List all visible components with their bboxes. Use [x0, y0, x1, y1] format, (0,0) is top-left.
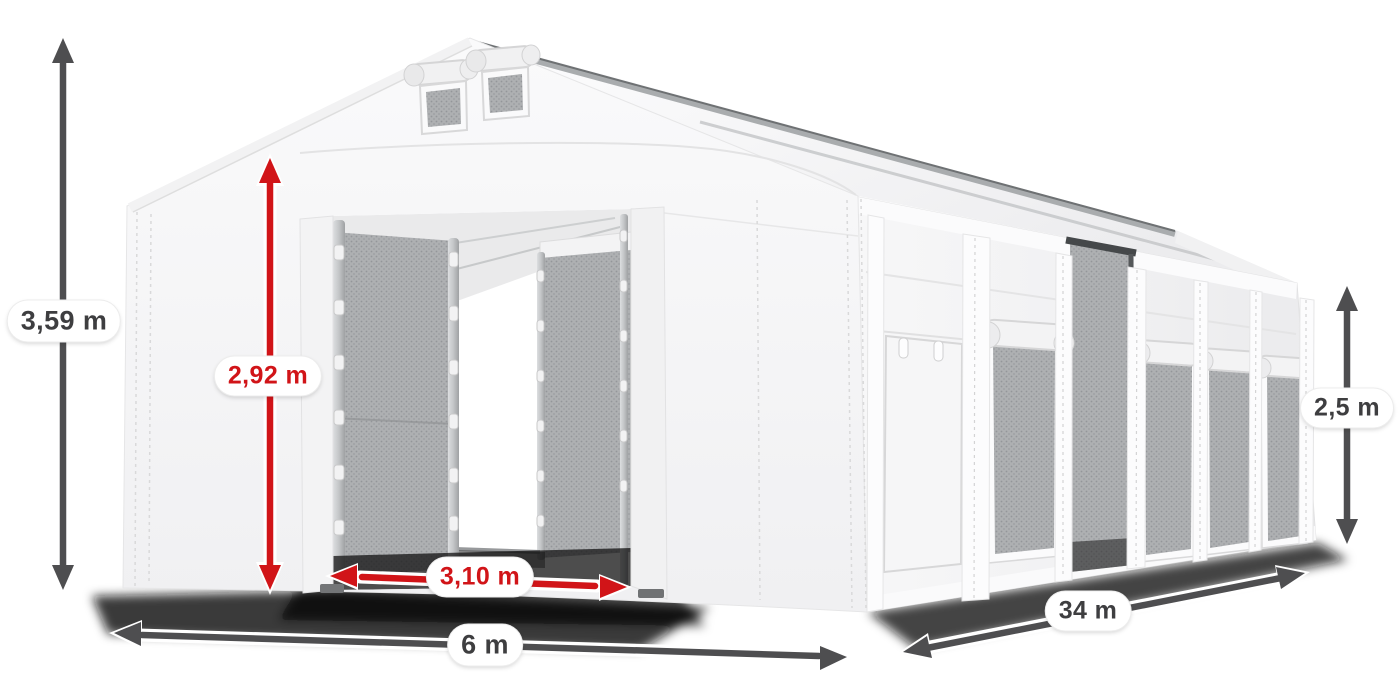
entrance-right-jamb — [631, 207, 667, 599]
door-tab — [934, 341, 943, 361]
label-door-height: 2,92 m — [215, 357, 321, 396]
inner-gate-mesh-left — [333, 232, 455, 578]
side-open-section — [1066, 240, 1136, 572]
label-width: 6 m — [448, 625, 522, 666]
side-wall — [858, 197, 1316, 612]
entrance-left-jamb — [300, 216, 333, 593]
gate-base-plate — [320, 584, 344, 593]
label-door-width: 3,10 m — [427, 558, 533, 597]
tent-illustration — [0, 0, 1400, 700]
door-tab — [899, 338, 908, 358]
entrance-opening — [333, 209, 631, 590]
tent-dimension-diagram: 3,59 m 2,92 m 3,10 m 6 m 34 m 2,5 m — [0, 0, 1400, 700]
label-total-height: 3,59 m — [8, 301, 120, 342]
inner-gate-mesh-right — [540, 250, 631, 558]
gate-base-plate — [638, 589, 664, 598]
label-length: 34 m — [1046, 592, 1131, 631]
label-side-height: 2,5 m — [1301, 389, 1393, 428]
side-door — [884, 336, 962, 572]
